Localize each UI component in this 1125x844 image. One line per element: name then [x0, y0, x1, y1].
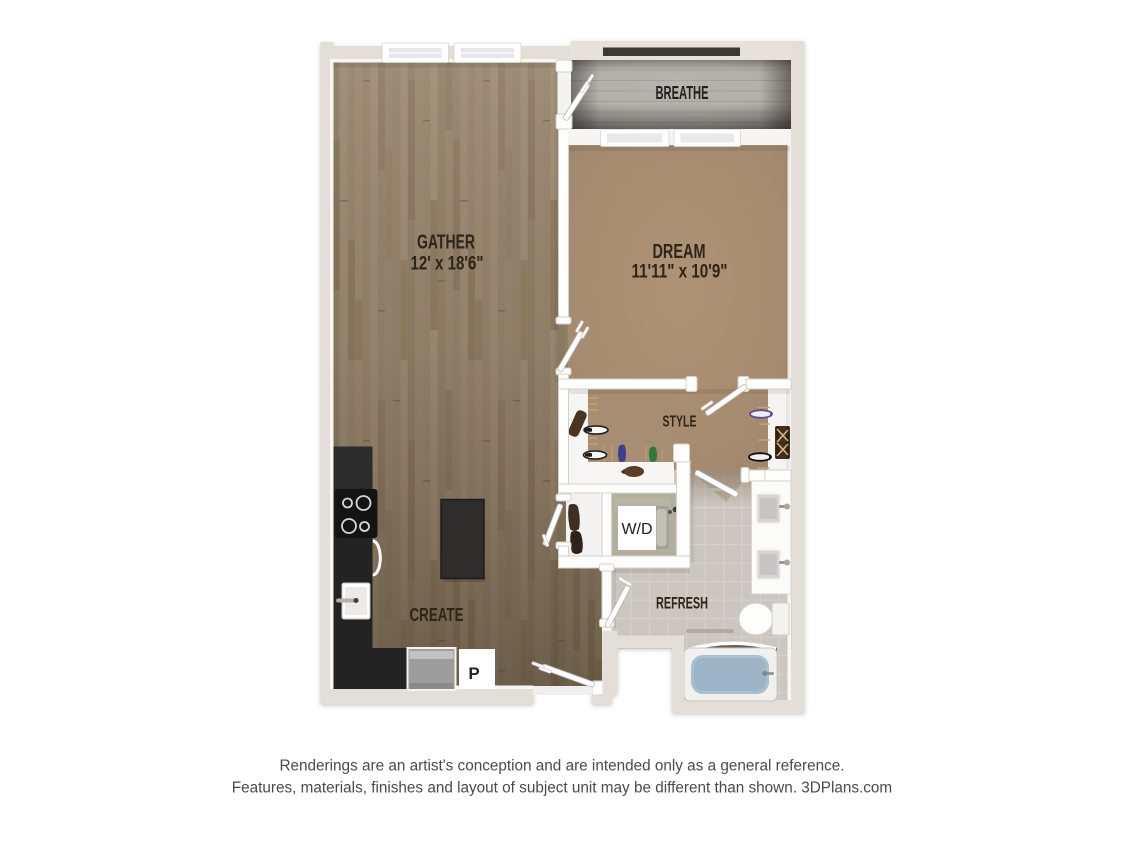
svg-text:W/D: W/D — [621, 521, 652, 538]
svg-text:CREATE: CREATE — [410, 604, 464, 625]
svg-text:GATHER: GATHER — [417, 232, 475, 254]
svg-text:P: P — [468, 664, 479, 683]
svg-text:BREATHE: BREATHE — [656, 83, 709, 103]
svg-text:12' x 18'6": 12' x 18'6" — [411, 254, 484, 275]
svg-text:Features, materials, finishes: Features, materials, finishes and layout… — [232, 780, 892, 797]
svg-text:11'11" x 10'9": 11'11" x 10'9" — [632, 262, 728, 283]
svg-text:REFRESH: REFRESH — [656, 594, 708, 613]
svg-text:Renderings are an artist's con: Renderings are an artist's conception an… — [279, 758, 844, 775]
svg-text:DREAM: DREAM — [653, 241, 706, 263]
svg-text:STYLE: STYLE — [663, 414, 697, 431]
